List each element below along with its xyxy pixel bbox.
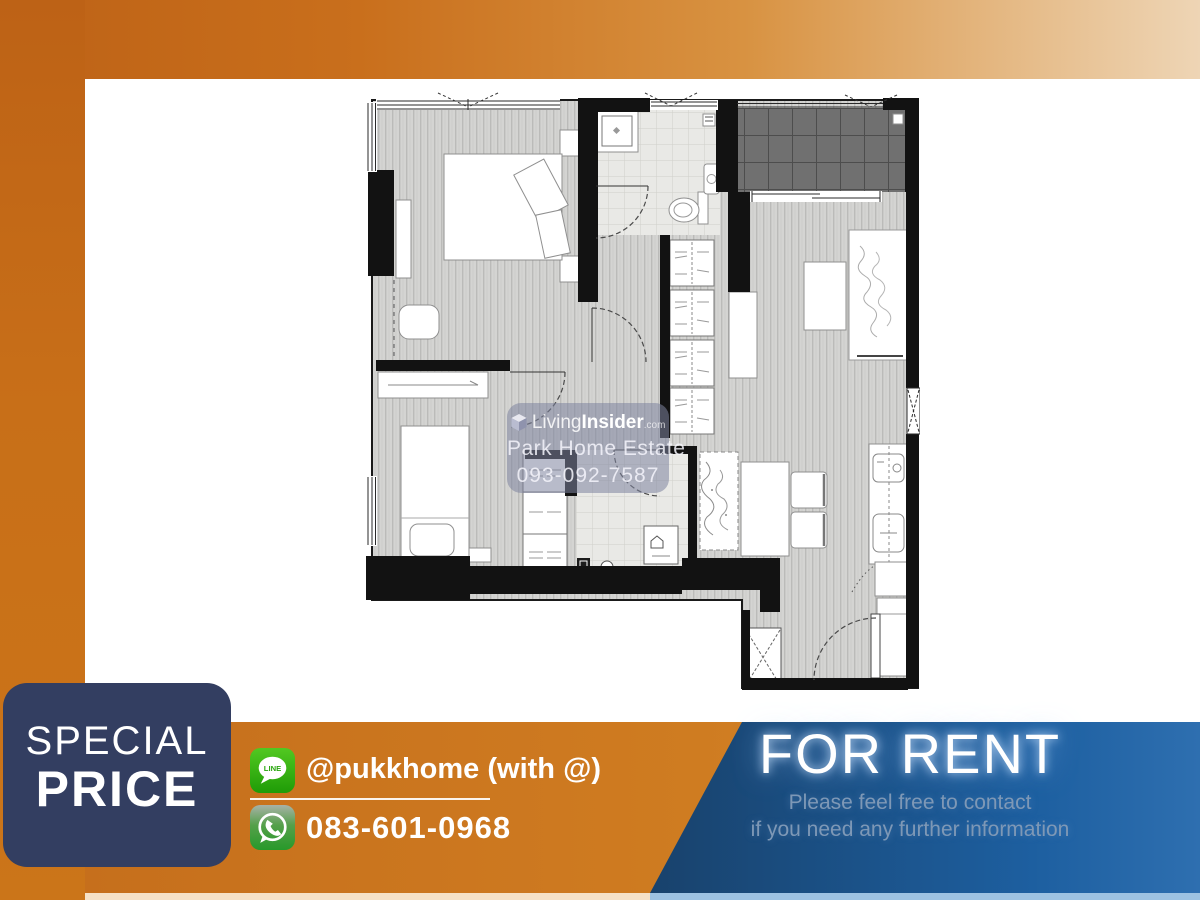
subtitle-line-1: Please feel free to contact — [705, 789, 1115, 816]
cube-logo-icon — [511, 414, 527, 431]
contact-divider — [250, 798, 490, 800]
desk — [396, 200, 411, 278]
poster-canvas: LivingInsider.com Park Home Estate 093-0… — [0, 0, 1200, 900]
entry-door-leaf — [871, 614, 880, 678]
for-rent-block: FOR RENT Please feel free to contact if … — [705, 726, 1115, 844]
floor-plan — [365, 90, 920, 695]
special-price-badge: SPECIAL PRICE — [3, 683, 231, 867]
top-orange-band — [0, 0, 1200, 79]
brand-suffix: Insider — [581, 412, 643, 433]
watermark-brand: LivingInsider.com — [507, 412, 669, 434]
brand-prefix: Living — [532, 412, 582, 433]
shoe-cabinet — [745, 628, 781, 686]
for-rent-title: FOR RENT — [705, 726, 1115, 782]
line-icon: LINE — [250, 748, 295, 793]
bottom-strip-right — [650, 893, 1200, 900]
window-top-bath — [650, 100, 718, 110]
water-heater — [644, 526, 678, 564]
tv-console — [729, 292, 757, 378]
nightstand — [560, 256, 580, 282]
vent — [703, 114, 715, 126]
balcony-drain — [893, 114, 903, 124]
whatsapp-icon — [250, 805, 295, 850]
special-label: SPECIAL — [3, 721, 231, 761]
chair — [399, 305, 439, 339]
balcony-floor — [737, 108, 905, 192]
fridge — [877, 598, 908, 676]
watermark-agency: Park Home Estate — [507, 437, 669, 461]
coffee-table — [804, 262, 846, 330]
plant — [700, 452, 738, 550]
price-label: PRICE — [3, 761, 231, 819]
nightstand — [560, 130, 580, 156]
shower — [596, 110, 638, 152]
line-id-label: @pukkhome (with @) — [306, 753, 601, 786]
watermark-phone: 093-092-7587 — [507, 464, 669, 488]
side-table — [469, 548, 491, 562]
line-icon-text: LINE — [264, 764, 281, 773]
watermark-overlay: LivingInsider.com Park Home Estate 093-0… — [507, 403, 669, 493]
phone-number-label: 083-601-0968 — [306, 810, 511, 846]
subtitle-line-2: if you need any further information — [705, 816, 1115, 843]
pillow — [410, 524, 454, 556]
window-left-bedroom2 — [365, 476, 377, 546]
balcony-sliding-door — [750, 191, 882, 202]
window-top-master — [376, 99, 560, 110]
sofa-rug — [849, 230, 907, 360]
dining-table — [741, 462, 789, 556]
ac-ledge — [907, 388, 920, 434]
bottom-strip-left — [85, 893, 650, 900]
bedroom2-shelf — [378, 372, 488, 398]
window-left-master — [365, 102, 377, 172]
for-rent-subtitle: Please feel free to contact if you need … — [705, 789, 1115, 844]
brand-tld: .com — [644, 420, 666, 431]
